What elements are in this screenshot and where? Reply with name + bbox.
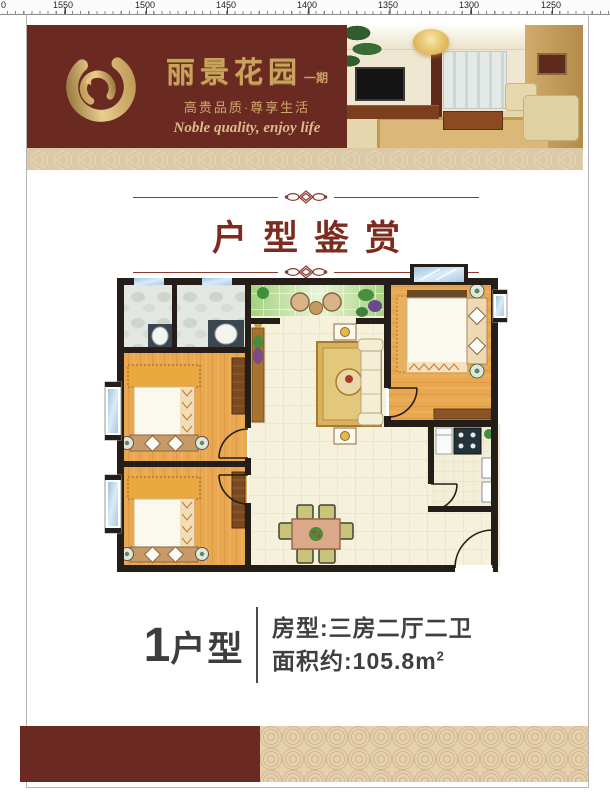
unit-info: 1户型 房型:三房二厅二卫 面积约:105.8m2 [138, 602, 508, 688]
photo-coffee-table [443, 111, 503, 130]
ruler-label: 1550 [53, 0, 73, 10]
photo-tv-cabinet [347, 105, 439, 119]
page-border-right [588, 14, 589, 787]
section-title: 户型鉴赏 [133, 210, 479, 261]
ruler-label: 0 [1, 0, 6, 10]
ruler-label: 1400 [297, 0, 317, 10]
page-border-bottom [26, 787, 589, 788]
photo-sofa [523, 95, 579, 141]
brand-title: 丽景花园 [166, 57, 302, 89]
title-rule-top [133, 188, 479, 206]
brand-slogan-en: Noble quality, enjoy life [152, 120, 342, 137]
unit-specs: 房型:三房二厅二卫 面积约:105.8m2 [272, 612, 473, 679]
brand-text-block: 丽景花园一期 高贵品质·尊享生活 Noble quality, enjoy li… [152, 49, 342, 137]
photo-plant-leaves [347, 25, 391, 73]
unit-area: 面积约:105.8m2 [272, 645, 473, 678]
unit-rooms: 房型:三房二厅二卫 [272, 612, 473, 645]
brand-slogan-cn: 高贵品质·尊享生活 [152, 97, 342, 116]
brand-phase: 一期 [304, 71, 328, 85]
ruler-label: 1350 [378, 0, 398, 10]
footer-pattern-block [260, 726, 588, 782]
horizontal-ruler[interactable]: 0 1550 1500 1450 1400 1350 1300 1250 [0, 0, 610, 15]
brochure-header: 丽景花园一期 高贵品质·尊享生活 Noble quality, enjoy li… [27, 25, 583, 148]
unit-type-suffix: 户型 [170, 630, 244, 669]
photo-wall-art [537, 53, 567, 75]
ruler-label: 1250 [541, 0, 561, 10]
floor-plan [104, 262, 508, 580]
ruler-label: 1300 [459, 0, 479, 10]
vertical-divider [256, 607, 258, 683]
unit-name: 1户型 [138, 618, 250, 673]
footer-maroon-block [20, 726, 260, 782]
ruler-label: 1500 [135, 0, 155, 10]
design-canvas: 0 1550 1500 1450 1400 1350 1300 1250 [0, 0, 610, 800]
knot-ornament-icon [284, 189, 328, 205]
decor-strip-top [27, 148, 583, 170]
ruler-label: 1450 [216, 0, 236, 10]
area-exponent: 2 [437, 648, 445, 663]
footer-band [20, 726, 588, 782]
photo-chandelier [413, 29, 449, 55]
phoenix-logo-icon [61, 47, 141, 127]
photo-glass-partition [443, 51, 507, 109]
unit-number: 1 [144, 619, 171, 672]
brand-panel: 丽景花园一期 高贵品质·尊享生活 Noble quality, enjoy li… [27, 25, 347, 148]
entry-opening [455, 565, 493, 572]
living-room-photo [347, 25, 583, 148]
